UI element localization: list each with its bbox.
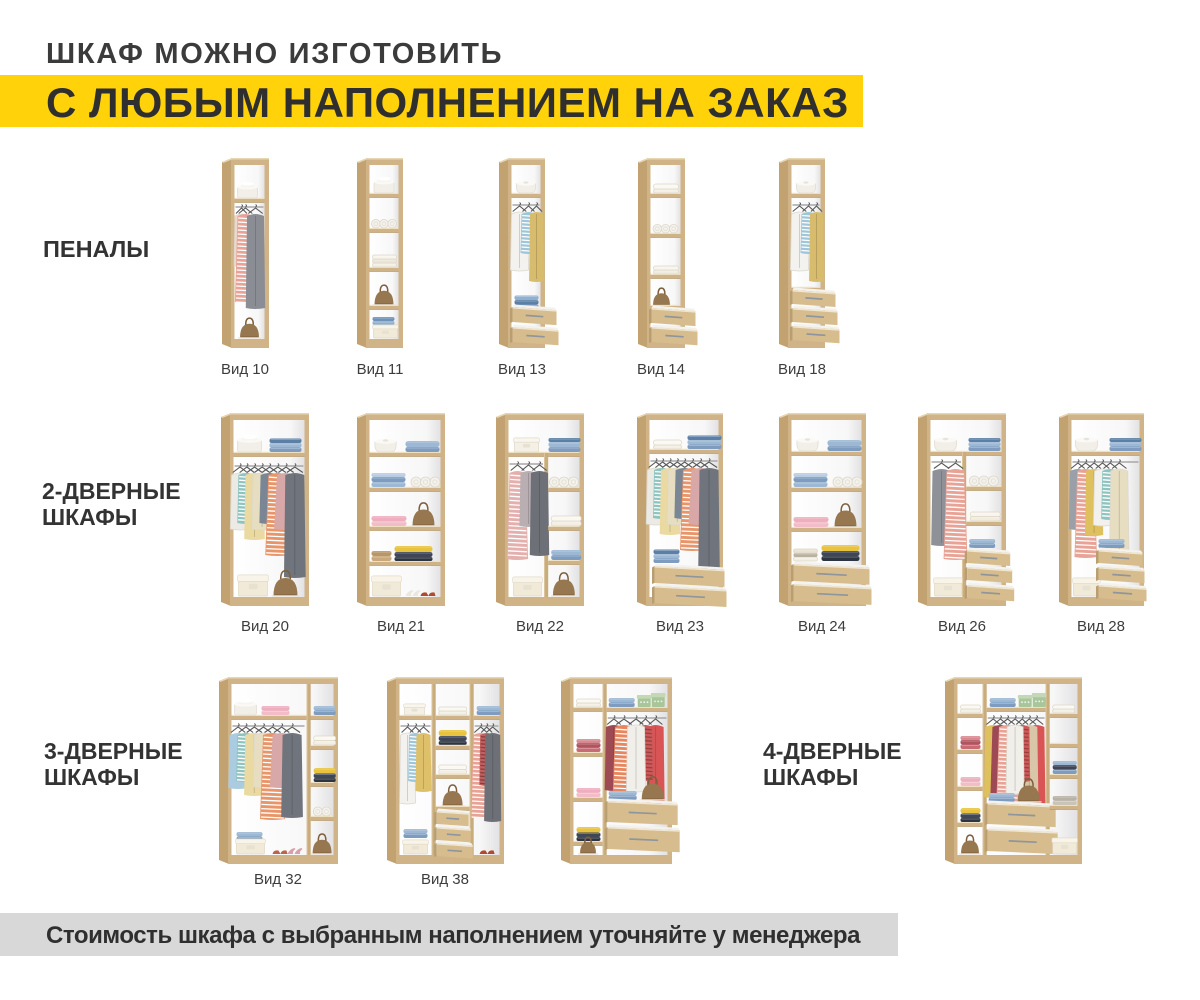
svg-text:ШКАФЫ: ШКАФЫ	[42, 504, 137, 530]
svg-text:Вид 18: Вид 18	[778, 361, 826, 378]
svg-text:3-ДВЕРНЫЕ: 3-ДВЕРНЫЕ	[44, 738, 183, 764]
svg-text:Вид 24: Вид 24	[798, 618, 846, 635]
svg-text:Вид 13: Вид 13	[498, 361, 546, 378]
svg-text:ШКАФЫ: ШКАФЫ	[44, 764, 139, 790]
svg-text:Вид 22: Вид 22	[516, 618, 564, 635]
svg-text:Вид 20: Вид 20	[241, 618, 289, 635]
svg-text:Вид 10: Вид 10	[221, 361, 269, 378]
svg-text:Вид 23: Вид 23	[656, 618, 704, 635]
svg-text:Вид 26: Вид 26	[938, 618, 986, 635]
svg-text:С ЛЮБЫМ НАПОЛНЕНИЕМ НА ЗАКАЗ: С ЛЮБЫМ НАПОЛНЕНИЕМ НА ЗАКАЗ	[46, 79, 849, 126]
svg-text:Вид 11: Вид 11	[357, 361, 404, 378]
svg-text:Вид 38: Вид 38	[421, 871, 469, 888]
svg-text:ШКАФ МОЖНО ИЗГОТОВИТЬ: ШКАФ МОЖНО ИЗГОТОВИТЬ	[46, 38, 503, 70]
svg-text:ШКАФЫ: ШКАФЫ	[763, 764, 858, 790]
svg-text:Стоимость шкафа с выбранным на: Стоимость шкафа с выбранным наполнением …	[46, 922, 861, 949]
svg-text:2-ДВЕРНЫЕ: 2-ДВЕРНЫЕ	[42, 478, 181, 504]
svg-text:Вид 14: Вид 14	[637, 361, 685, 378]
svg-text:ПЕНАЛЫ: ПЕНАЛЫ	[43, 236, 149, 262]
svg-text:4-ДВЕРНЫЕ: 4-ДВЕРНЫЕ	[763, 738, 902, 764]
svg-text:Вид 32: Вид 32	[254, 871, 302, 888]
svg-text:Вид 28: Вид 28	[1077, 618, 1125, 635]
svg-text:Вид 21: Вид 21	[377, 618, 425, 635]
